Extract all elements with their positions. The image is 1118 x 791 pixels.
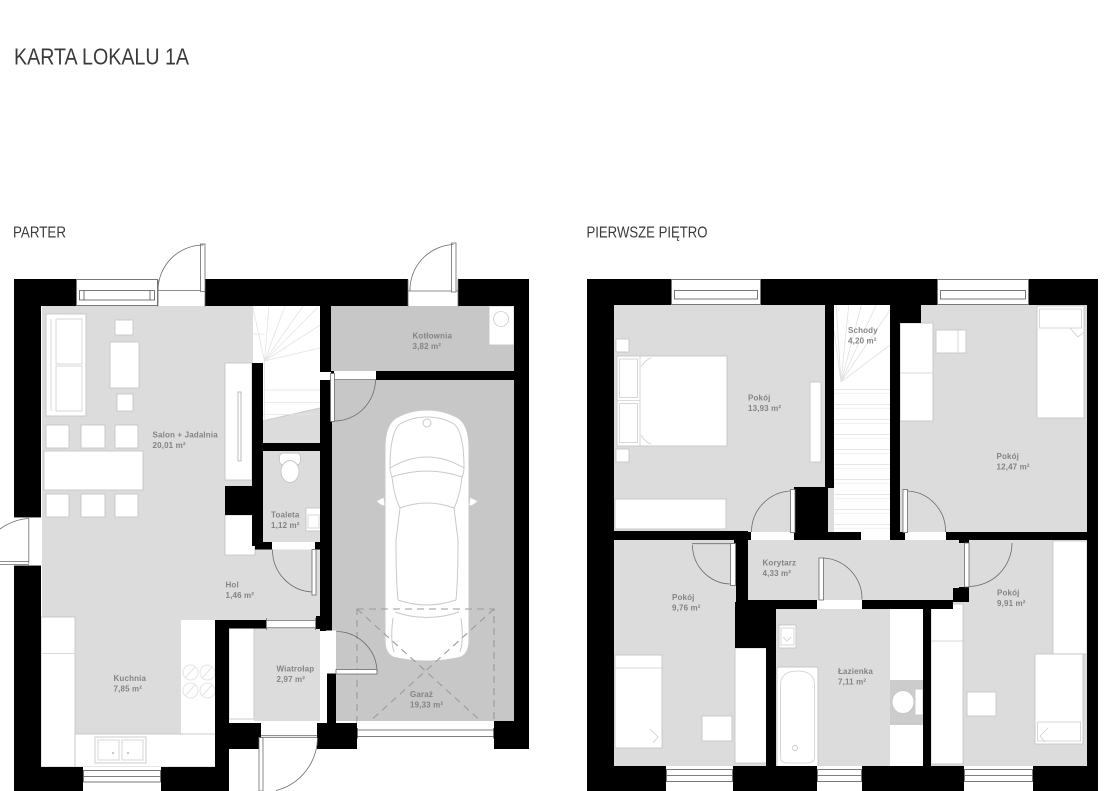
svg-text:7,85 m²: 7,85 m² (114, 685, 143, 694)
svg-text:Korytarz: Korytarz (763, 559, 797, 568)
svg-text:3,82 m²: 3,82 m² (413, 342, 442, 351)
svg-text:Pokój: Pokój (748, 394, 771, 403)
svg-text:19,33 m²: 19,33 m² (410, 701, 443, 710)
svg-text:Kuchnia: Kuchnia (114, 674, 147, 683)
svg-text:9,91 m²: 9,91 m² (997, 599, 1026, 608)
svg-text:Pokój: Pokój (672, 593, 695, 602)
svg-text:7,11 m²: 7,11 m² (838, 678, 866, 687)
svg-text:Salon + Jadalnia: Salon + Jadalnia (153, 431, 219, 440)
svg-text:Wiatrołap: Wiatrołap (277, 665, 315, 674)
svg-text:13,93 m²: 13,93 m² (748, 404, 781, 413)
svg-text:Pokój: Pokój (997, 452, 1020, 461)
svg-text:Hol: Hol (226, 581, 239, 590)
svg-text:Toaleta: Toaleta (271, 511, 300, 520)
svg-text:Łazienka: Łazienka (838, 667, 873, 676)
svg-text:KARTA LOKALU 1A: KARTA LOKALU 1A (14, 44, 190, 70)
svg-text:PARTER: PARTER (13, 225, 66, 242)
svg-text:Pokój: Pokój (997, 589, 1020, 598)
svg-text:1,46 m²: 1,46 m² (226, 591, 255, 600)
svg-text:Garaż: Garaż (410, 690, 433, 699)
svg-text:4,33 m²: 4,33 m² (763, 569, 792, 578)
svg-text:PIERWSZE PIĘTRO: PIERWSZE PIĘTRO (587, 225, 708, 242)
svg-text:12,47 m²: 12,47 m² (997, 463, 1030, 472)
svg-text:Kotłownia: Kotłownia (413, 332, 453, 341)
svg-text:1,12 m²: 1,12 m² (271, 521, 300, 530)
svg-text:20,01 m²: 20,01 m² (153, 441, 186, 450)
svg-text:2,97 m²: 2,97 m² (277, 675, 306, 684)
svg-text:9,76 m²: 9,76 m² (672, 604, 701, 613)
svg-text:4,20 m²: 4,20 m² (848, 337, 877, 346)
svg-text:Schody: Schody (848, 326, 878, 335)
